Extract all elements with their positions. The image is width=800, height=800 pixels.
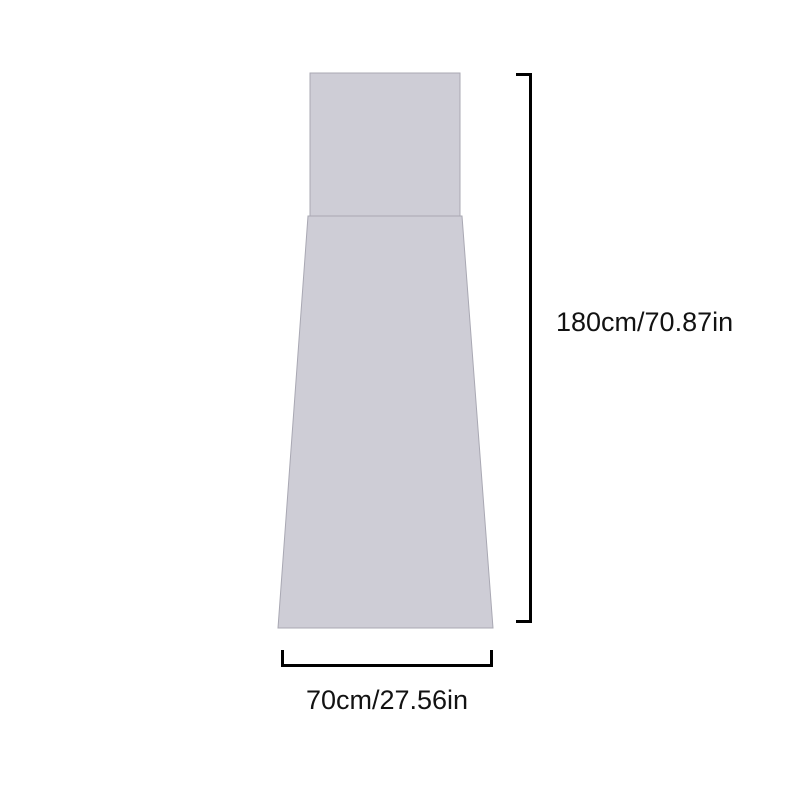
cover-top-panel [310, 73, 460, 216]
cover-body [278, 216, 493, 628]
width-dimension-line [283, 650, 492, 666]
diagram-canvas [0, 0, 800, 800]
product-dimension-diagram: 180cm/70.87in 70cm/27.56in [0, 0, 800, 800]
width-dimension-label: 70cm/27.56in [281, 685, 493, 716]
height-dimension-line [516, 75, 531, 622]
height-dimension-label: 180cm/70.87in [556, 307, 733, 338]
